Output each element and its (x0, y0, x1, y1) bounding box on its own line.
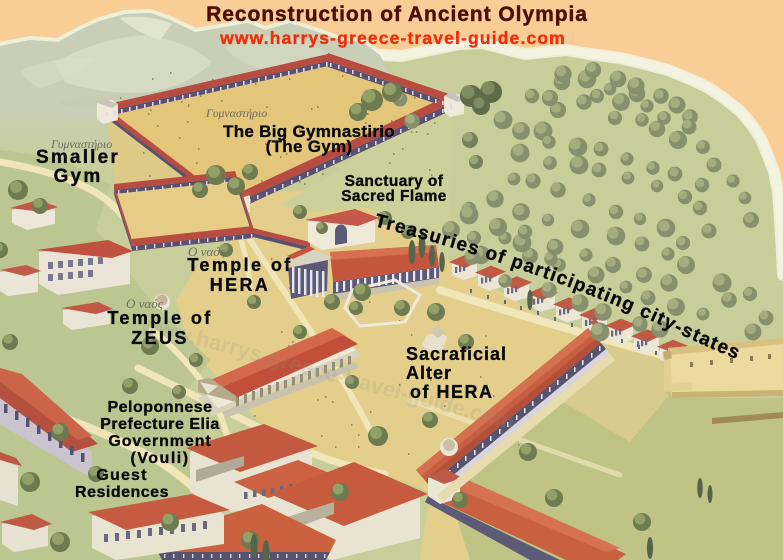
svg-text:Gym: Gym (54, 166, 103, 187)
svg-text:Prefecture Elia: Prefecture Elia (100, 416, 220, 433)
svg-text:Peloponnese: Peloponnese (107, 399, 212, 416)
svg-text:Alter: Alter (406, 363, 452, 383)
svg-text:Sacraficial: Sacraficial (406, 344, 507, 364)
svg-text:Reconstruction of Ancient Olym: Reconstruction of Ancient Olympia (206, 3, 588, 26)
svg-text:(The Gym): (The Gym) (266, 137, 353, 156)
svg-text:of HERA: of HERA (410, 382, 494, 402)
svg-text:Temple of: Temple of (107, 308, 212, 328)
svg-text:Sacred Flame: Sacred Flame (341, 188, 447, 205)
svg-text:Government: Government (108, 433, 211, 450)
svg-text:www.harrys-greece-travel-guide: www.harrys-greece-travel-guide.com (219, 28, 566, 48)
svg-text:Residences: Residences (75, 484, 169, 501)
svg-text:ZEUS: ZEUS (131, 328, 189, 348)
svg-text:HERA: HERA (210, 275, 271, 295)
svg-text:(Vouli): (Vouli) (130, 450, 189, 467)
svg-text:Γυμναστήριο: Γυμναστήριο (50, 137, 112, 151)
svg-text:Γυμναστήριο: Γυμναστήριο (205, 106, 267, 120)
svg-text:Guest: Guest (96, 467, 147, 484)
svg-text:Ο ναός: Ο ναός (188, 244, 226, 259)
svg-text:Ο ναός: Ο ναός (126, 296, 164, 311)
